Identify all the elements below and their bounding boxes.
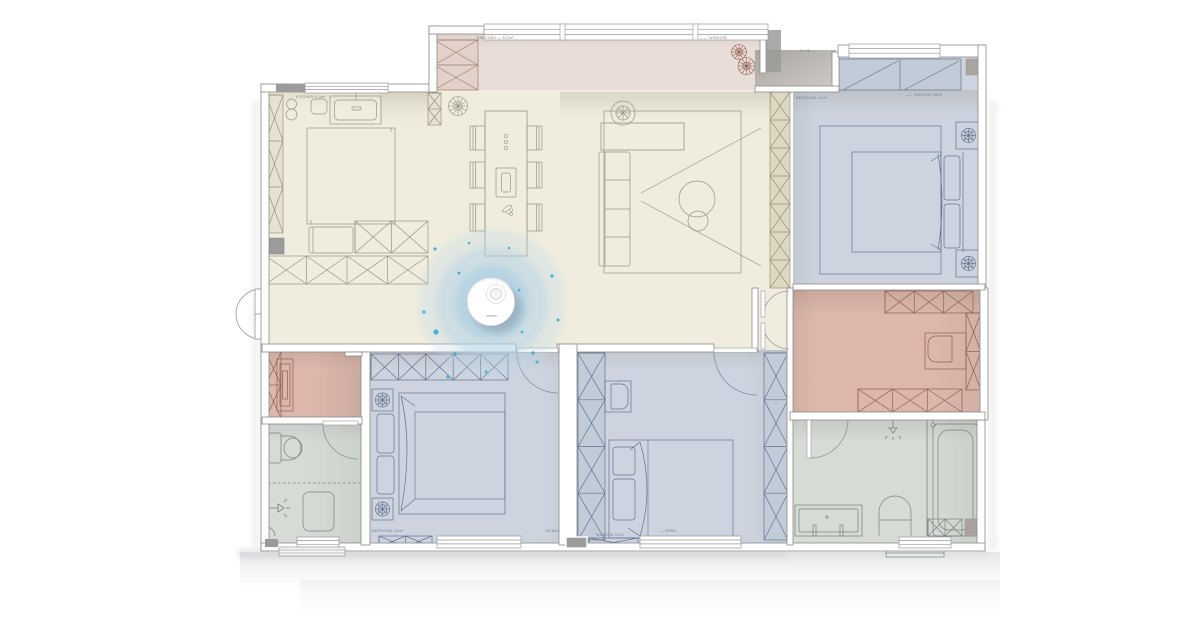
svg-text:—— WINDOW: —— WINDOW — [700, 36, 727, 40]
svg-text:BALCONY — 6.2m²: BALCONY — 6.2m² — [477, 36, 514, 40]
svg-text:WINDOW 1520: WINDOW 1520 — [596, 533, 624, 537]
svg-text:BEDROOM 12m²: BEDROOM 12m² — [372, 529, 404, 533]
svg-text:— W900: — W900 — [660, 529, 676, 533]
svg-text:BEDROOM 14m²: BEDROOM 14m² — [796, 96, 828, 100]
svg-text:—— WINDOW 1660: —— WINDOW 1660 — [905, 93, 942, 97]
svg-text:KITCHEN 8.5m²: KITCHEN 8.5m² — [296, 95, 326, 99]
svg-text:W1660: W1660 — [546, 529, 559, 533]
svg-text:— FLUE —: — FLUE — — [795, 49, 816, 53]
